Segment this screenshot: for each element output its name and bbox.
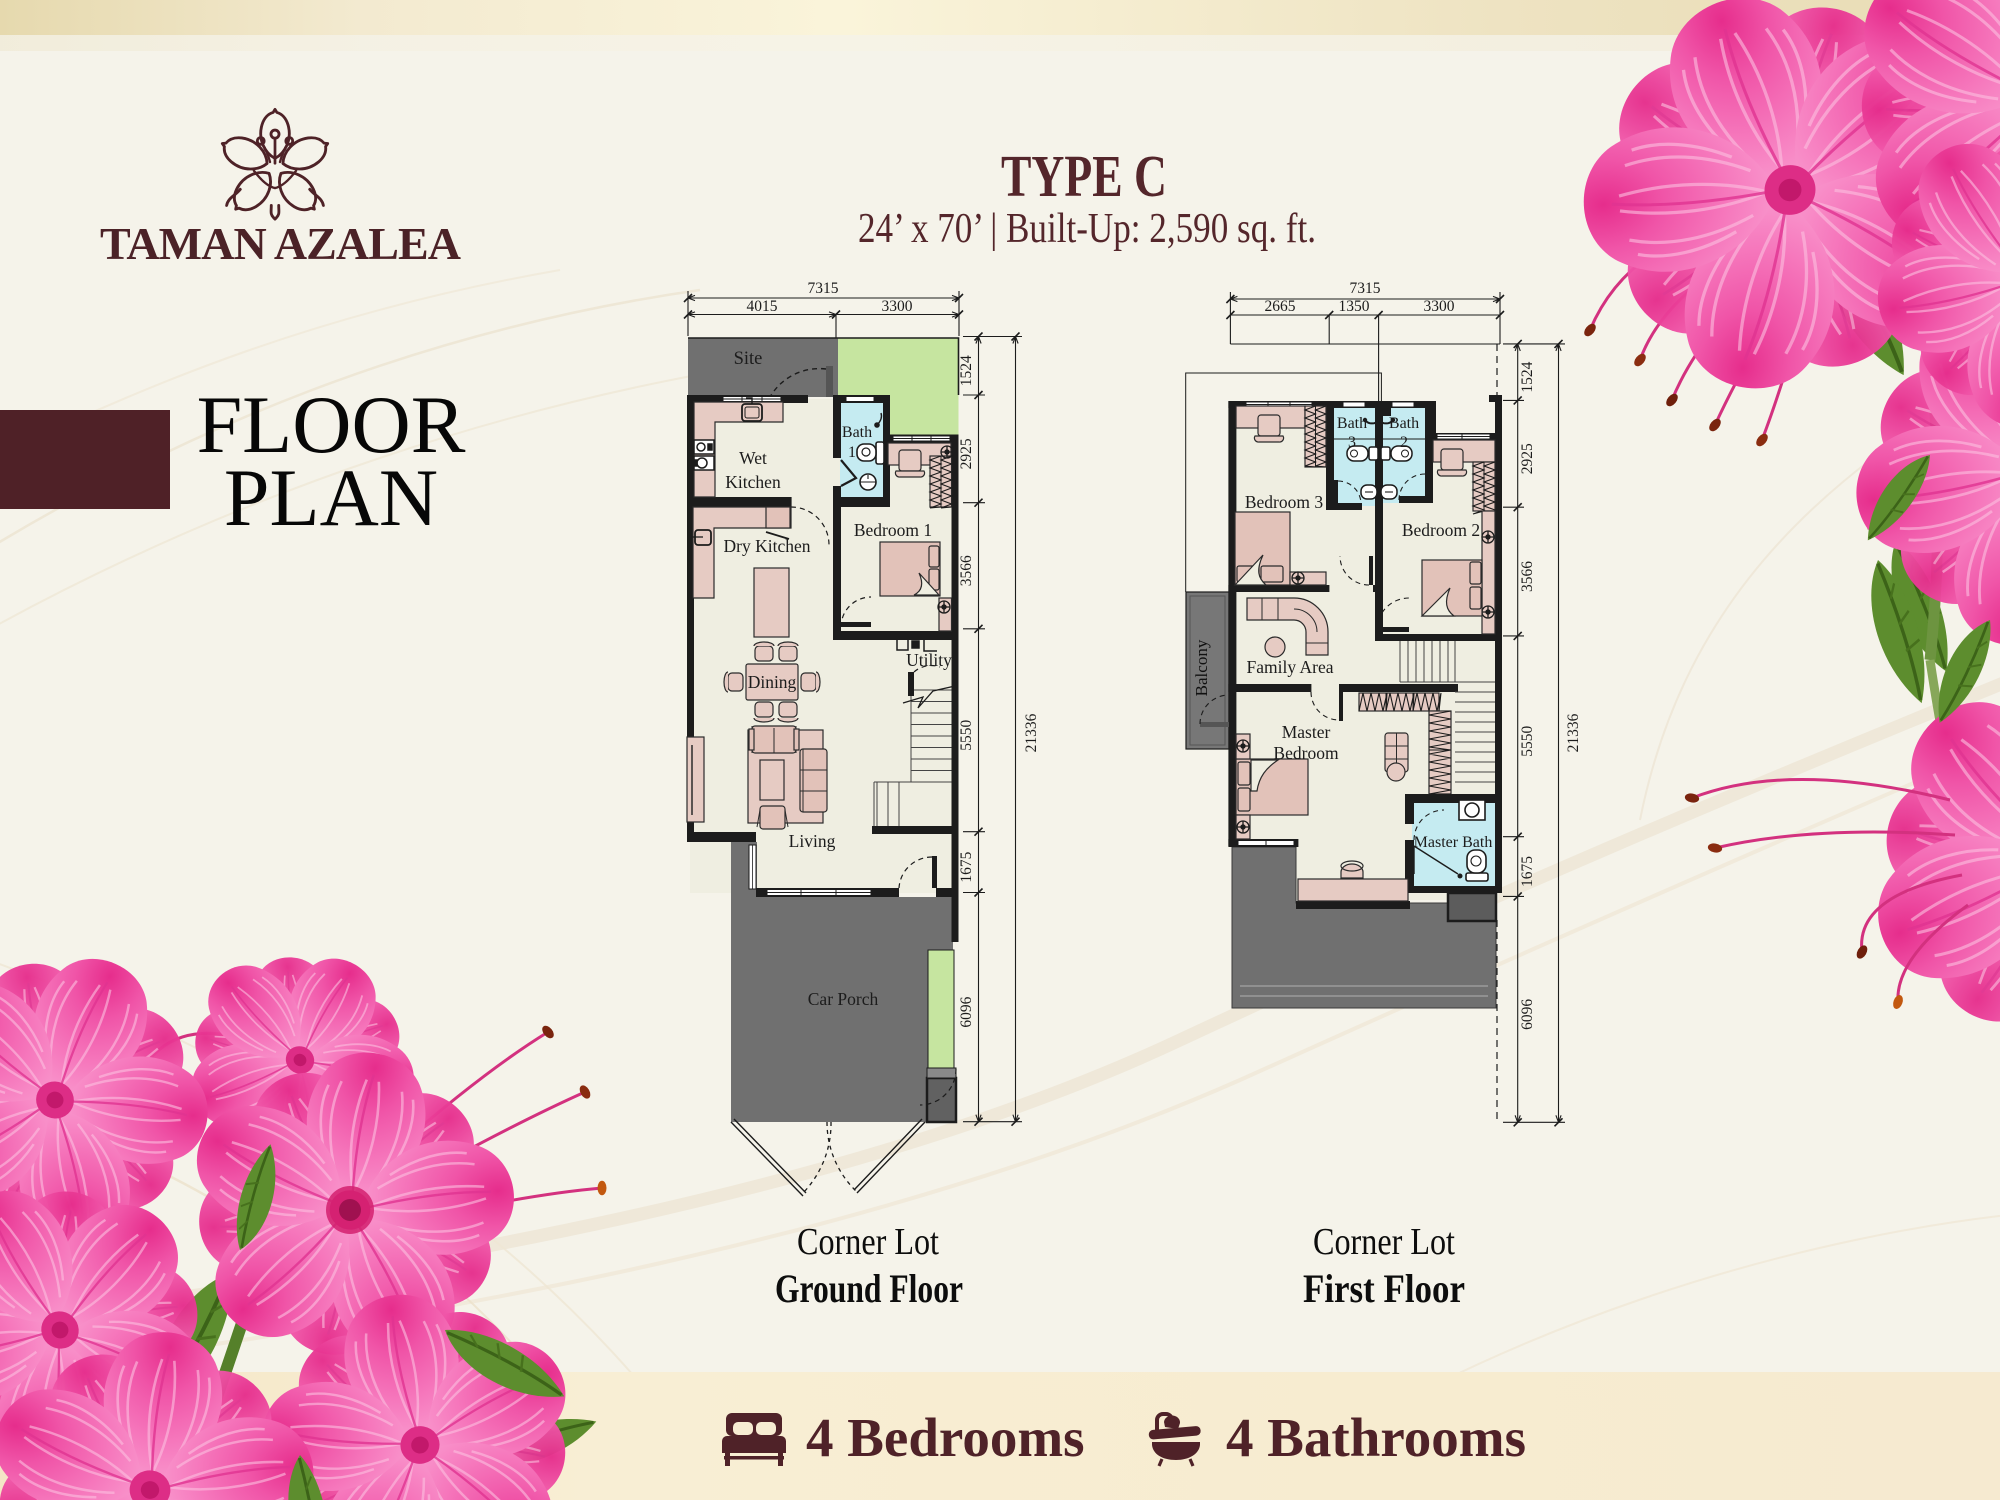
svg-text:7315: 7315	[808, 280, 839, 297]
svg-text:Bedroom 1: Bedroom 1	[854, 520, 932, 540]
svg-text:TYPE C: TYPE C	[1001, 143, 1167, 209]
svg-text:4 Bedrooms: 4 Bedrooms	[806, 1407, 1085, 1468]
svg-text:3300: 3300	[1424, 298, 1455, 315]
svg-text:2925: 2925	[958, 438, 975, 469]
svg-text:1524: 1524	[1519, 361, 1536, 392]
svg-text:1675: 1675	[1519, 856, 1536, 887]
svg-text:3566: 3566	[958, 555, 975, 586]
svg-text:Dining: Dining	[748, 672, 797, 692]
svg-text:Bath: Bath	[842, 424, 872, 441]
svg-text:Ground Floor: Ground Floor	[775, 1266, 963, 1311]
svg-text:2: 2	[1400, 434, 1408, 451]
svg-text:Car Porch: Car Porch	[808, 989, 879, 1009]
svg-text:4015: 4015	[747, 298, 778, 315]
svg-text:5550: 5550	[1519, 726, 1536, 757]
svg-text:21336: 21336	[1565, 713, 1582, 752]
svg-text:7315: 7315	[1350, 280, 1381, 297]
svg-text:Master: Master	[1282, 722, 1331, 742]
svg-text:Bedroom 3: Bedroom 3	[1245, 492, 1324, 512]
svg-text:Living: Living	[789, 831, 836, 851]
svg-text:Master Bath: Master Bath	[1414, 834, 1493, 851]
svg-text:3566: 3566	[1519, 561, 1536, 592]
svg-text:Corner Lot: Corner Lot	[797, 1221, 939, 1263]
svg-text:4 Bathrooms: 4 Bathrooms	[1226, 1407, 1526, 1468]
svg-text:1: 1	[848, 444, 856, 461]
svg-text:3: 3	[1348, 434, 1356, 451]
svg-text:6096: 6096	[958, 996, 975, 1027]
svg-text:Bedroom: Bedroom	[1273, 743, 1339, 763]
svg-text:Kitchen: Kitchen	[725, 472, 781, 492]
svg-text:1524: 1524	[958, 355, 975, 386]
svg-text:6096: 6096	[1519, 999, 1536, 1030]
svg-text:Site: Site	[734, 349, 763, 369]
svg-text:Balcony: Balcony	[1192, 639, 1211, 696]
svg-text:Utility: Utility	[906, 650, 952, 670]
svg-text:1675: 1675	[958, 851, 975, 882]
svg-text:Dry Kitchen: Dry Kitchen	[724, 536, 811, 556]
svg-text:2925: 2925	[1519, 443, 1536, 474]
svg-text:2665: 2665	[1265, 298, 1296, 315]
svg-text:3300: 3300	[882, 298, 913, 315]
svg-text:24’ x 70’ | Built-Up: 2,590 sq: 24’ x 70’ | Built-Up: 2,590 sq. ft.	[858, 206, 1316, 252]
svg-text:5550: 5550	[958, 720, 975, 751]
svg-text:Corner Lot: Corner Lot	[1313, 1221, 1455, 1263]
svg-text:Family Area: Family Area	[1247, 657, 1334, 677]
svg-text:PLAN: PLAN	[224, 452, 438, 543]
svg-text:Bedroom 2: Bedroom 2	[1402, 520, 1480, 540]
svg-text:21336: 21336	[1023, 713, 1040, 752]
svg-text:1350: 1350	[1339, 298, 1370, 315]
svg-text:Bath: Bath	[1337, 415, 1367, 432]
svg-text:TAMAN AZALEA: TAMAN AZALEA	[100, 218, 462, 269]
svg-text:Wet: Wet	[739, 448, 767, 468]
svg-text:First Floor: First Floor	[1303, 1266, 1465, 1311]
svg-text:Bath: Bath	[1389, 415, 1419, 432]
